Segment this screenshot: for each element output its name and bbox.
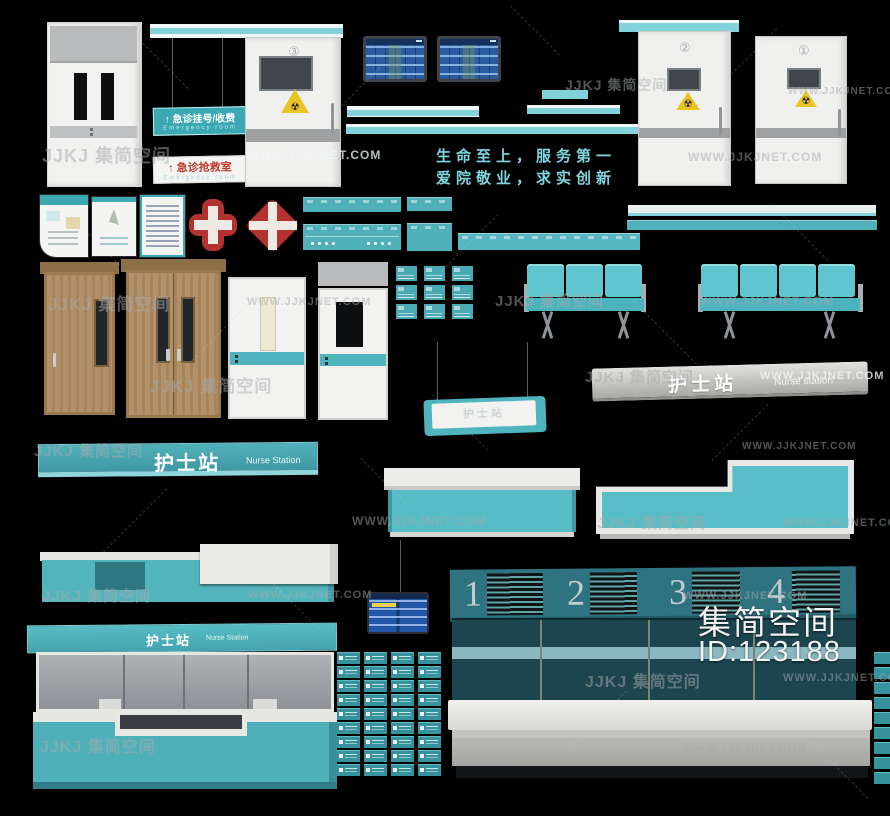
watermark-logo: JJKJ 集简空间 xyxy=(42,142,171,168)
watermark-url: WWW.JJKJNET.COM xyxy=(783,672,890,684)
watermark-logo: JJKJ 集简空间 xyxy=(34,440,143,461)
watermark-logo: JJKJ 集简空间 xyxy=(585,366,694,387)
watermark-url: WWW.JJKJNET.COM xyxy=(247,148,381,162)
watermark-url: WWW.JJKJNET.COM xyxy=(248,589,372,601)
watermark-logo: JJKJ 集简空间 xyxy=(585,668,701,692)
watermark-logo: JJKJ 集简空间 xyxy=(40,733,156,757)
watermark-url: WWW.JJKJNET.COM xyxy=(742,441,856,452)
asset-id: ID:123188 xyxy=(698,636,841,669)
watermark-logo: JJKJ 集简空间 xyxy=(597,512,706,533)
watermark-logo: JJKJ 集简空间 xyxy=(565,75,667,95)
watermark-url: WWW.JJKJNET.COM xyxy=(783,517,890,529)
watermark-url: WWW.JJKJNET.COM xyxy=(683,742,807,754)
watermark-logo: JJKJ 集简空间 xyxy=(150,372,272,397)
watermark-url: WWW.JJKJNET.COM xyxy=(760,370,884,382)
asset-board: ↑ 急诊挂号/收费 Emergency room ↑ 急诊抢救室 Emergen… xyxy=(0,0,890,816)
watermark-url: WWW.JJKJNET.COM xyxy=(788,86,890,97)
watermark-logo: JJKJ 集简空间 xyxy=(42,585,151,606)
watermark-url: WWW.JJKJNET.COM xyxy=(700,294,834,308)
watermark-logo: JJKJ 集简空间 xyxy=(48,290,170,315)
watermark-logo: JJKJ 集简空间 xyxy=(495,290,604,311)
watermark-layer: JJKJ 集简空间WWW.JJKJNET.COMWWW.JJKJNET.COMW… xyxy=(0,0,890,816)
watermark-url: WWW.JJKJNET.COM xyxy=(247,296,371,308)
watermark-url: WWW.JJKJNET.COM xyxy=(688,150,822,164)
watermark-url: WWW.JJKJNET.COM xyxy=(352,514,486,528)
